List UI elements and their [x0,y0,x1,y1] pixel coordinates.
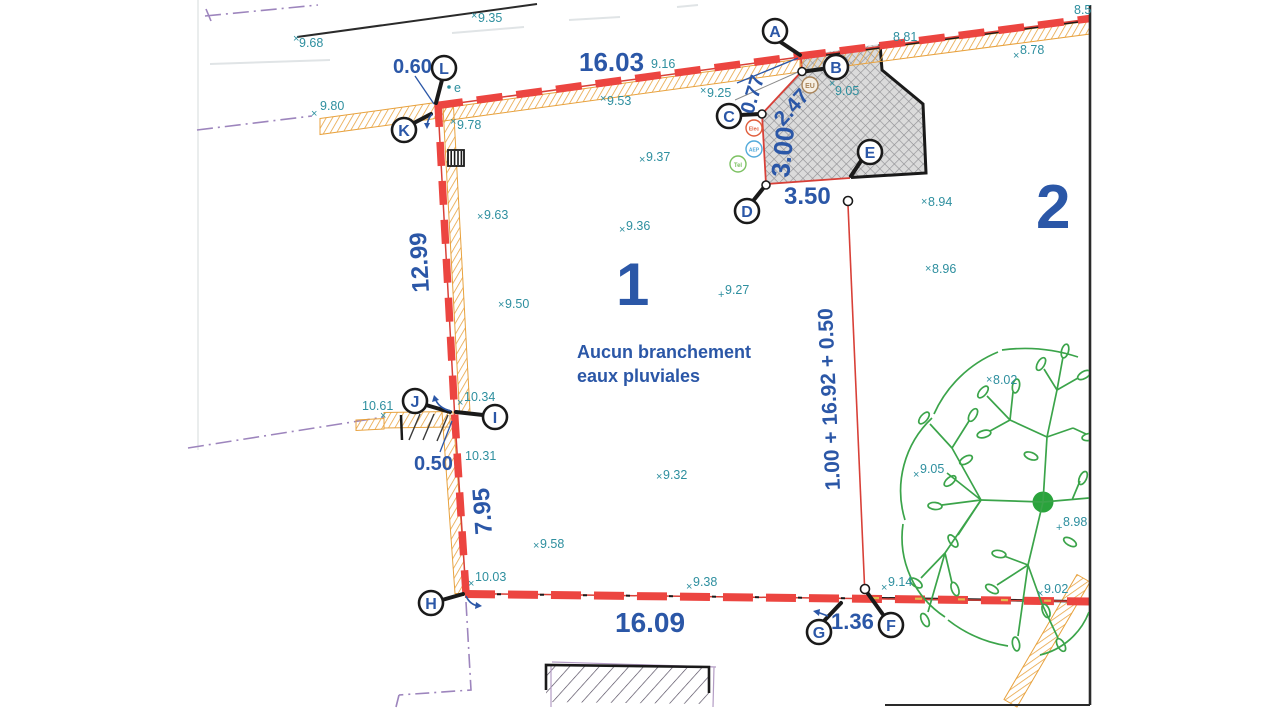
svg-text:8.98: 8.98 [1063,515,1087,529]
svg-text:K: K [398,123,410,140]
svg-text:3.00: 3.00 [765,125,800,178]
svg-text:8.94: 8.94 [928,195,952,209]
svg-text:C: C [723,109,735,126]
svg-text:Tel: Tel [734,163,743,169]
svg-text:Elec: Elec [749,127,760,133]
svg-text:9.35: 9.35 [478,11,502,25]
svg-text:9.32: 9.32 [663,468,687,482]
svg-text:9.68: 9.68 [299,36,323,50]
svg-text:×: × [1037,588,1043,600]
svg-text:0.60: 0.60 [393,56,432,78]
svg-text:×: × [477,211,483,223]
svg-text:10.61: 10.61 [362,399,393,413]
svg-text:10.31: 10.31 [465,449,496,463]
svg-text:EU: EU [805,83,815,90]
svg-text:9.78: 9.78 [457,118,481,132]
svg-text:9.50: 9.50 [505,297,529,311]
svg-text:×: × [450,116,456,128]
svg-text:AEP: AEP [749,148,760,154]
svg-text:9.25: 9.25 [707,86,731,100]
svg-text:10.34: 10.34 [464,390,495,404]
svg-text:H: H [425,596,437,613]
svg-text:×: × [925,263,931,275]
svg-text:I: I [493,410,497,427]
svg-text:+: + [1056,522,1062,534]
svg-text:8.96: 8.96 [932,262,956,276]
svg-text:×: × [700,85,706,97]
svg-text:×: × [1013,50,1019,62]
svg-text:×: × [986,374,992,386]
svg-text:8.5: 8.5 [1074,3,1091,17]
svg-text:×: × [533,540,539,552]
svg-text:e: e [454,81,461,95]
svg-text:8.81: 8.81 [893,30,917,44]
svg-text:8.02: 8.02 [993,373,1017,387]
svg-text:+: + [718,289,724,301]
svg-text:9.37: 9.37 [646,150,670,164]
svg-text:10.03: 10.03 [475,570,506,584]
svg-text:16.03: 16.03 [579,47,644,77]
svg-text:7.95: 7.95 [468,487,498,535]
svg-text:12.99: 12.99 [405,232,435,293]
svg-text:×: × [656,471,662,483]
svg-text:F: F [886,618,896,635]
svg-text:D: D [741,204,753,221]
svg-text:L: L [439,61,449,78]
svg-text:2: 2 [1036,173,1070,242]
svg-text:G: G [813,625,825,642]
svg-text:E: E [865,145,876,162]
svg-text:B: B [830,60,842,77]
svg-text:3.50: 3.50 [784,183,831,210]
svg-text:eaux pluviales: eaux pluviales [577,366,700,386]
svg-text:×: × [471,10,477,22]
svg-text:×: × [457,397,463,409]
svg-text:1: 1 [616,251,649,318]
svg-text:×: × [619,224,625,236]
svg-text:9.14: 9.14 [888,575,912,589]
svg-text:×: × [311,108,317,120]
svg-text:×: × [600,93,606,105]
svg-text:×: × [639,154,645,166]
svg-text:8.78: 8.78 [1020,43,1044,57]
svg-text:9.05: 9.05 [835,84,859,98]
svg-text:9.58: 9.58 [540,537,564,551]
svg-text:×: × [881,582,887,594]
svg-text:×: × [686,581,692,593]
svg-text:9.05: 9.05 [920,462,944,476]
svg-text:9.53: 9.53 [607,94,631,108]
svg-text:9.27: 9.27 [725,283,749,297]
svg-text:16.09: 16.09 [615,607,685,638]
svg-text:×: × [921,196,927,208]
svg-text:Aucun branchement: Aucun branchement [577,342,751,362]
svg-text:9.80: 9.80 [320,99,344,113]
svg-text:9.38: 9.38 [693,575,717,589]
svg-text:1.36: 1.36 [831,609,874,634]
svg-text:×: × [913,469,919,481]
svg-text:9.16: 9.16 [651,57,675,71]
svg-text:0.50: 0.50 [414,453,453,475]
svg-text:9.02: 9.02 [1044,582,1068,596]
svg-text:×: × [468,578,474,590]
svg-text:9.36: 9.36 [626,219,650,233]
svg-text:J: J [411,394,420,411]
svg-text:×: × [498,299,504,311]
svg-text:9.63: 9.63 [484,208,508,222]
svg-text:A: A [769,24,781,41]
